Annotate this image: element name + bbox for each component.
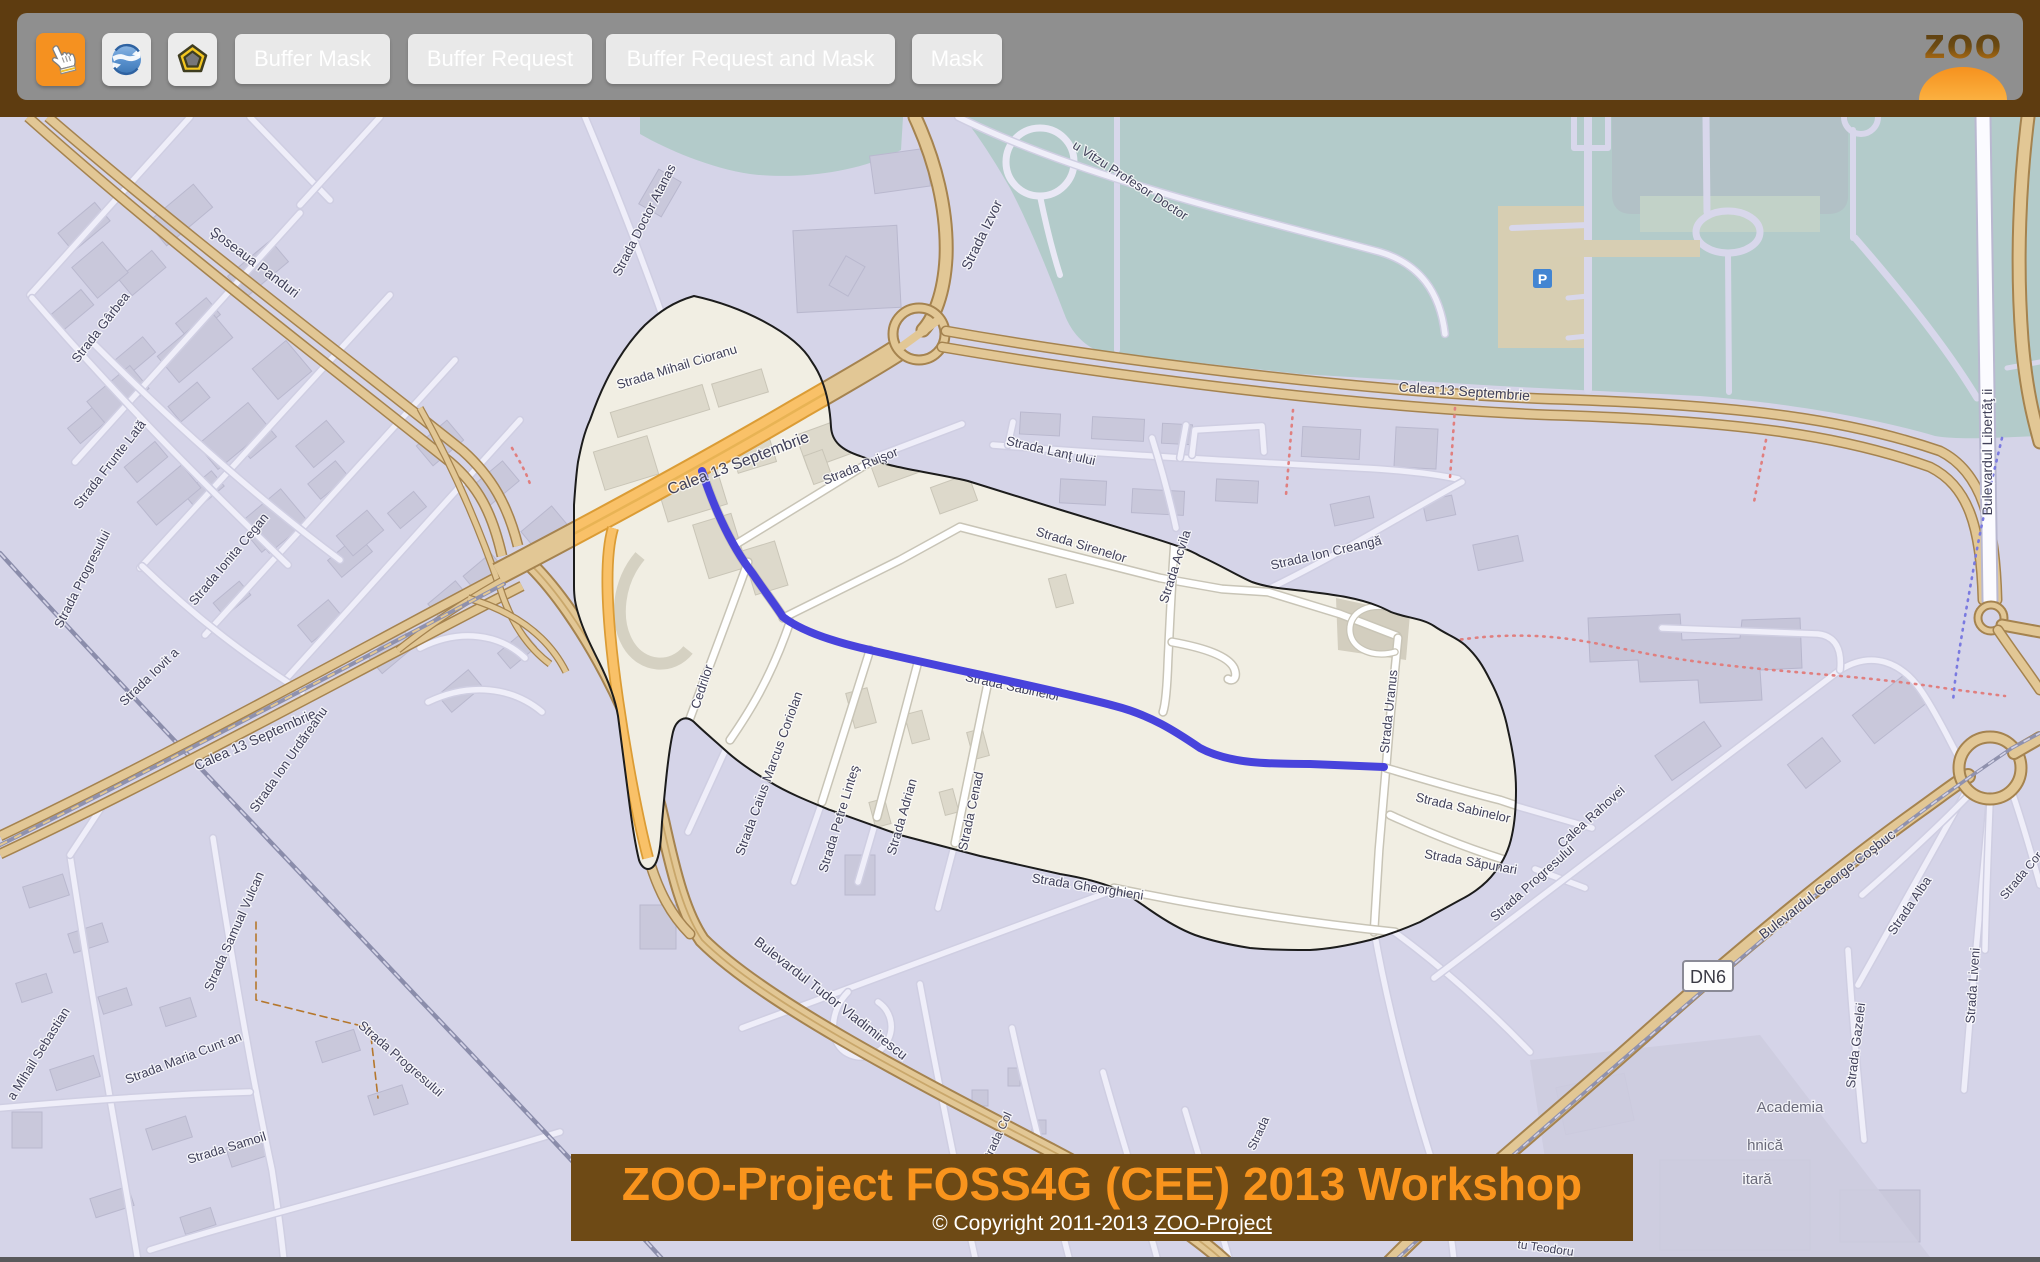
svg-text:Bulevardul Libertăţ ii: Bulevardul Libertăţ ii	[1979, 389, 1995, 516]
svg-text:itară: itară	[1742, 1171, 1772, 1188]
svg-text:zoo: zoo	[1924, 19, 2003, 68]
svg-text:P: P	[1538, 271, 1547, 287]
svg-text:hnică: hnică	[1747, 1137, 1784, 1154]
svg-text:Academia: Academia	[1757, 1099, 1824, 1116]
svg-text:DN6: DN6	[1690, 967, 1726, 987]
